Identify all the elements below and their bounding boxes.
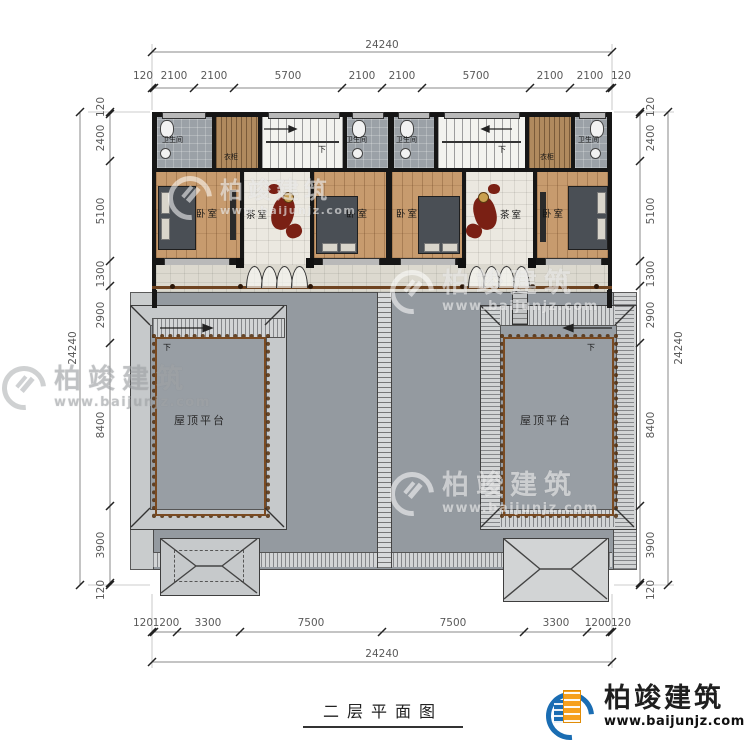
left-roof-terrace-label: 屋顶平台 [174, 412, 226, 428]
tearoom-carving-center [478, 192, 489, 203]
window [398, 112, 430, 119]
title-underline [303, 726, 463, 728]
dim-label: 3300 [543, 617, 570, 629]
railing-post [594, 284, 599, 289]
wall-stub [607, 290, 612, 308]
railing-post [460, 284, 465, 289]
stair-down-label: 下 [498, 144, 506, 155]
dim-label: 120 [95, 580, 107, 600]
window [268, 112, 340, 119]
bedroom-label: 卧室 [542, 206, 565, 220]
bed-pillow [340, 243, 356, 252]
bed-pillow [161, 192, 170, 214]
dim-label: 8400 [95, 412, 107, 439]
window [352, 112, 384, 119]
logo-building-blue [554, 700, 563, 723]
dim-label: 5700 [463, 70, 490, 82]
floorplan-canvas: 屋顶平台 下 屋顶平台 下 [0, 0, 750, 750]
bed-pillow [161, 218, 170, 240]
dim-label: 3900 [95, 532, 107, 559]
bedroom-label: 卧室 [346, 206, 369, 220]
logo-building-orange [563, 690, 581, 723]
bed-pillow [322, 243, 338, 252]
bed-pillow [597, 218, 606, 240]
dim-label: 2400 [645, 125, 657, 152]
dim-label: 3900 [645, 532, 657, 559]
dim-total: 24240 [365, 648, 398, 660]
window [579, 112, 606, 119]
dim-label: 2100 [389, 70, 416, 82]
stairwell-left [262, 117, 343, 168]
balcony-railing [152, 286, 612, 289]
tearoom-label: 茶室 [246, 207, 269, 221]
dim-label: 8400 [645, 412, 657, 439]
railing-post [170, 284, 175, 289]
dim-label: 120 [95, 97, 107, 117]
right-small-hip-roof [503, 538, 609, 602]
dim-label: 2900 [645, 302, 657, 329]
dim-label: 5700 [275, 70, 302, 82]
dim-total: 24240 [67, 331, 79, 364]
stair-rail-line [266, 141, 339, 143]
dim-label: 2100 [349, 70, 376, 82]
dim-label: 2400 [95, 125, 107, 152]
dim-label: 120 [645, 97, 657, 117]
tearoom-root-carving [488, 184, 500, 194]
stair-down-label: 下 [318, 144, 326, 155]
bathroom-label: 卫生间 [578, 135, 599, 145]
dim-label: 1300 [645, 261, 657, 288]
right-roof-top-band [481, 306, 634, 325]
dim-label: 2900 [95, 302, 107, 329]
top-dimension-labels: 24240 120 2100 2100 5700 2100 2100 5700 … [133, 39, 631, 82]
rooms-block [152, 112, 612, 265]
company-logo-icon [544, 684, 596, 740]
dim-label: 5100 [95, 198, 107, 225]
left-small-roof-dashed-rect [174, 550, 244, 582]
dim-label: 120 [645, 580, 657, 600]
bed-pillow [424, 243, 440, 252]
dim-label: 2100 [577, 70, 604, 82]
dim-label: 1200 [153, 617, 180, 629]
stair-rail-line [442, 141, 521, 143]
bathroom-label: 卫生间 [162, 135, 183, 145]
wall-stub [152, 290, 157, 308]
right-terrace-down-label: 下 [587, 342, 595, 353]
dim-label: 120 [611, 70, 631, 82]
dim-label: 2100 [161, 70, 188, 82]
tearoom-root-carving [268, 184, 280, 194]
left-small-hip-roof [160, 538, 260, 596]
wardrobe-label: 衣柜 [540, 152, 554, 162]
sink [590, 148, 601, 159]
dim-label: 7500 [440, 617, 467, 629]
window [444, 112, 520, 119]
drawing-title-text: 二层平面图 [300, 698, 466, 722]
dim-label: 120 [133, 70, 153, 82]
dim-label: 2100 [537, 70, 564, 82]
company-logo: 柏竣建筑 www.baijunjz.com [544, 684, 745, 740]
dim-label: 1300 [95, 261, 107, 288]
balcony-column [528, 258, 536, 268]
tearoom-label: 茶室 [500, 207, 523, 221]
company-name: 柏竣建筑 [604, 684, 745, 714]
dim-label: 5100 [645, 198, 657, 225]
dim-label: 120 [611, 617, 631, 629]
bed-pillow [597, 192, 606, 214]
dim-label: 120 [133, 617, 153, 629]
sink [400, 148, 411, 159]
company-url: www.baijunjz.com [604, 714, 745, 729]
right-roof-left-band [481, 306, 500, 527]
window [162, 112, 206, 119]
dim-label: 7500 [298, 617, 325, 629]
bathroom-label: 卫生间 [396, 135, 417, 145]
right-roof-chimney [512, 291, 528, 325]
bottom-dimension-labels: 120 1200 3300 7500 7500 3300 1200 120 24… [133, 617, 631, 660]
tearoom-carving-center [283, 192, 294, 203]
left-dimension-labels: 120 2400 5100 1300 2900 8400 3900 120 24… [67, 97, 107, 600]
bedroom-label: 卧室 [196, 206, 219, 220]
watermark-logo-icon [0, 357, 55, 419]
bedroom-label: 卧室 [396, 206, 419, 220]
bed-pillow [442, 243, 458, 252]
dim-label: 1200 [585, 617, 612, 629]
left-terrace-down-label: 下 [163, 342, 171, 353]
railing-post [530, 284, 535, 289]
sink [352, 148, 363, 159]
dim-total: 24240 [365, 39, 398, 51]
dim-total: 24240 [673, 331, 685, 364]
wardrobe-label: 衣柜 [224, 152, 238, 162]
dim-label: 3300 [195, 617, 222, 629]
railing-post [238, 284, 243, 289]
sink [160, 148, 171, 159]
stairwell-right [438, 117, 525, 168]
drawing-title: 二层平面图 [300, 698, 466, 728]
dim-label: 2100 [201, 70, 228, 82]
railing-post [308, 284, 313, 289]
right-dimension-labels: 120 2400 5100 1300 2900 8400 3900 120 24… [645, 97, 685, 600]
balcony-column [458, 258, 466, 268]
right-roof-terrace-label: 屋顶平台 [520, 412, 572, 428]
center-party-divider [377, 292, 392, 568]
balcony-column [306, 258, 314, 268]
tv-cabinet [230, 190, 236, 240]
balcony-column [236, 258, 244, 268]
bathroom-label: 卫生间 [346, 135, 367, 145]
